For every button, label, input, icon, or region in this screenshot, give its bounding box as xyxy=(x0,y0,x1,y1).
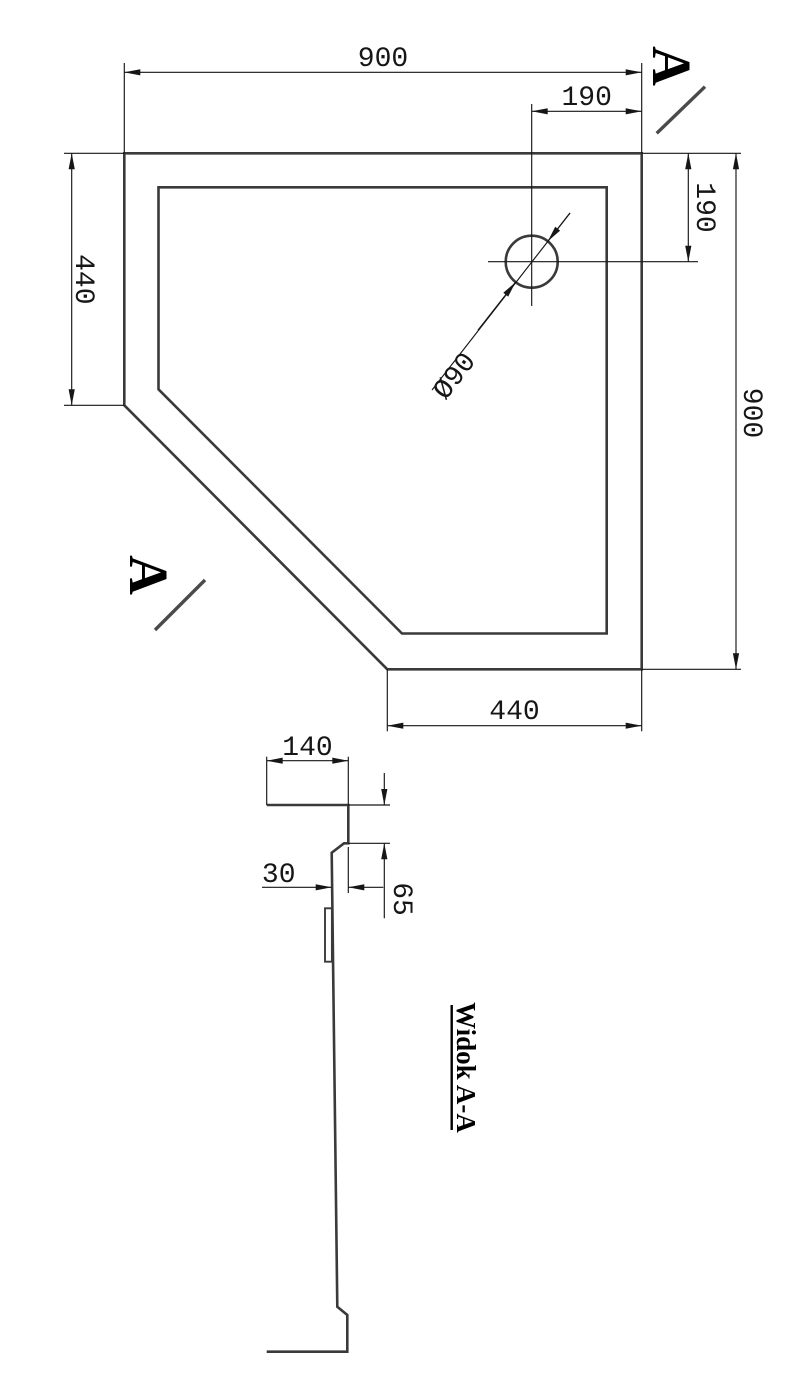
dim-right-height-label: 900 xyxy=(735,388,766,438)
tray-inner-outline xyxy=(159,187,607,633)
section-marker-left: A xyxy=(118,555,205,630)
section-flange-detail xyxy=(325,908,332,961)
dim-drain-diameter-label: Ø90 xyxy=(428,348,483,407)
section-marker-top-right-label: A xyxy=(641,46,702,86)
dim-left-side-label: 440 xyxy=(67,254,98,304)
dim-rim-width-label: 140 xyxy=(282,733,332,764)
technical-drawing-svg: 900 190 190 900 440 xyxy=(0,0,805,1378)
plan-view: 900 190 190 900 440 xyxy=(64,44,766,731)
dim-drain-from-right-label: 190 xyxy=(561,83,611,114)
section-marker-left-label: A xyxy=(118,555,179,595)
dimension-rim-height: 65 xyxy=(348,773,416,918)
dimension-wall-inset: 30 xyxy=(262,847,383,893)
dim-top-width-label: 900 xyxy=(358,44,408,75)
dimension-bottom-side: 440 xyxy=(387,669,641,731)
dim-bottom-side-label: 440 xyxy=(489,697,539,728)
dim-rim-height-label: 65 xyxy=(385,882,416,916)
section-caption: Widok A-A xyxy=(451,1002,481,1133)
section-marker-top-right: A xyxy=(641,46,705,133)
dim-wall-inset-label: 30 xyxy=(262,860,296,891)
dimension-drain-from-top: 190 xyxy=(642,153,741,261)
section-cut-stroke-top-right xyxy=(657,87,705,134)
dim-drain-from-top-label: 190 xyxy=(688,182,719,232)
section-view: 140 65 30 Widok A-A xyxy=(262,733,481,1352)
dimension-drain-from-right: 190 xyxy=(532,83,642,114)
section-caption-label: Widok A-A xyxy=(451,1002,481,1133)
tray-outer-outline xyxy=(124,153,641,669)
dimension-rim-width: 140 xyxy=(267,733,349,805)
dimension-left-side: 440 xyxy=(64,153,124,405)
drawing-canvas: 900 190 190 900 440 xyxy=(0,0,805,1378)
